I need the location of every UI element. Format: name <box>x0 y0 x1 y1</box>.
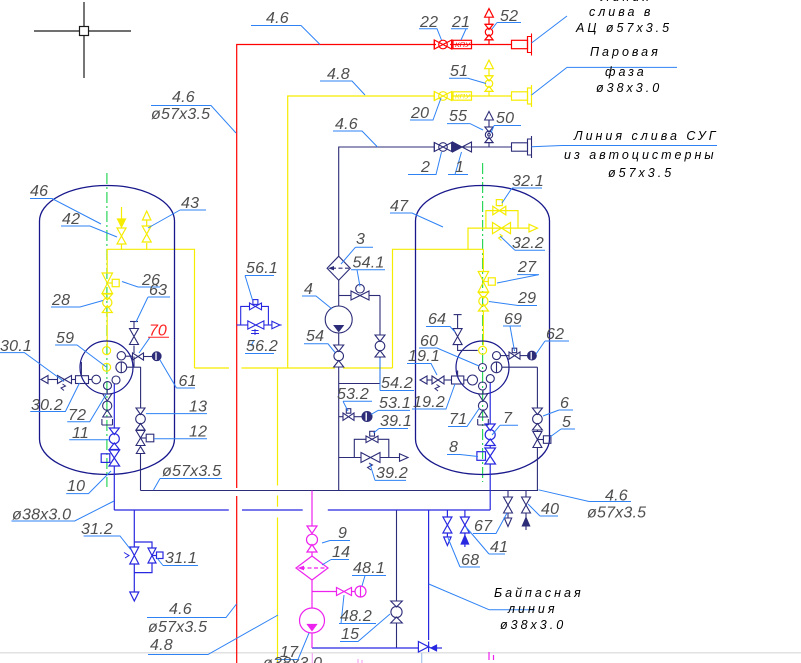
svg-text:4.8: 4.8 <box>327 66 350 83</box>
svg-text:8: 8 <box>449 439 458 456</box>
svg-text:72: 72 <box>68 407 86 424</box>
svg-text:4.6: 4.6 <box>605 488 628 505</box>
svg-text:48.2: 48.2 <box>340 608 372 625</box>
svg-text:53.1: 53.1 <box>379 395 411 412</box>
svg-text:19.1: 19.1 <box>408 348 440 365</box>
svg-text:53.2: 53.2 <box>337 386 369 403</box>
svg-text:Линия: Линия <box>600 0 652 4</box>
svg-text:Байпасная: Байпасная <box>494 586 584 600</box>
svg-text:1: 1 <box>455 159 464 176</box>
svg-text:67: 67 <box>474 518 493 535</box>
svg-text:фаза: фаза <box>605 65 647 79</box>
svg-text:4.6: 4.6 <box>266 10 289 27</box>
svg-text:51: 51 <box>450 63 468 80</box>
svg-text:31.2: 31.2 <box>81 521 113 538</box>
svg-text:4.6: 4.6 <box>335 116 358 133</box>
svg-text:39.2: 39.2 <box>376 465 408 482</box>
svg-text:ø38х3.0: ø38х3.0 <box>263 655 322 663</box>
svg-text:из автоцистерны: из автоцистерны <box>564 148 717 162</box>
svg-text:56.2: 56.2 <box>246 338 278 355</box>
svg-text:5: 5 <box>562 414 571 431</box>
svg-text:14: 14 <box>332 544 350 561</box>
svg-text:68: 68 <box>461 552 479 569</box>
svg-text:63: 63 <box>149 282 167 299</box>
svg-text:10: 10 <box>67 478 85 495</box>
svg-text:54: 54 <box>306 328 324 345</box>
svg-text:линия: линия <box>507 602 558 616</box>
svg-text:Паровая: Паровая <box>590 45 661 59</box>
svg-text:4.6: 4.6 <box>172 89 195 106</box>
svg-text:7: 7 <box>503 410 513 427</box>
svg-text:30.1: 30.1 <box>0 338 32 355</box>
svg-text:52: 52 <box>500 8 518 25</box>
svg-text:54.2: 54.2 <box>381 375 413 392</box>
svg-text:39.1: 39.1 <box>380 413 412 430</box>
svg-text:46: 46 <box>30 183 48 200</box>
svg-text:КПУ: КПУ <box>455 95 471 101</box>
svg-text:15: 15 <box>341 626 359 643</box>
svg-text:6: 6 <box>560 395 569 412</box>
svg-text:55: 55 <box>449 108 467 125</box>
svg-text:47: 47 <box>390 198 409 215</box>
svg-text:19.2: 19.2 <box>413 394 445 411</box>
svg-text:32.1: 32.1 <box>512 173 544 190</box>
svg-text:48.1: 48.1 <box>353 560 385 577</box>
svg-text:Линия слива СУГ: Линия слива СУГ <box>573 129 719 143</box>
svg-text:ø38х3.0: ø38х3.0 <box>500 618 566 632</box>
svg-text:ø57х3.5: ø57х3.5 <box>608 166 674 180</box>
svg-text:ø57х3.5: ø57х3.5 <box>151 106 210 123</box>
svg-text:29: 29 <box>517 290 536 307</box>
svg-text:62: 62 <box>546 326 564 343</box>
svg-text:41: 41 <box>490 539 508 556</box>
svg-text:21: 21 <box>451 14 470 31</box>
svg-text:43: 43 <box>181 195 199 212</box>
svg-text:11: 11 <box>72 425 89 442</box>
svg-text:4.8: 4.8 <box>150 637 173 654</box>
svg-text:ø38х3.0: ø38х3.0 <box>12 507 71 524</box>
svg-text:71: 71 <box>449 411 467 428</box>
svg-text:4.6: 4.6 <box>169 601 192 618</box>
svg-text:59: 59 <box>56 330 74 347</box>
svg-text:ø57х3.5: ø57х3.5 <box>148 619 207 636</box>
svg-text:КПУ: КПУ <box>455 43 471 49</box>
svg-text:32.2: 32.2 <box>512 235 544 252</box>
svg-text:4: 4 <box>304 281 313 298</box>
svg-text:27: 27 <box>517 259 537 276</box>
svg-text:56.1: 56.1 <box>246 260 278 277</box>
svg-text:40: 40 <box>541 501 559 518</box>
svg-text:АЦ ø57х3.5: АЦ ø57х3.5 <box>575 21 672 35</box>
svg-text:61: 61 <box>179 373 197 390</box>
svg-text:30.2: 30.2 <box>31 397 63 414</box>
svg-text:54.1: 54.1 <box>353 255 385 272</box>
svg-text:2: 2 <box>420 159 430 176</box>
svg-text:42: 42 <box>62 211 80 228</box>
svg-text:12: 12 <box>189 424 207 441</box>
svg-text:50: 50 <box>496 110 514 127</box>
svg-text:9: 9 <box>338 525 347 542</box>
svg-text:ø57х3.5: ø57х3.5 <box>587 505 646 522</box>
svg-text:31.1: 31.1 <box>165 550 197 567</box>
svg-text:22: 22 <box>419 14 438 31</box>
svg-text:13: 13 <box>189 399 207 416</box>
svg-text:ø38х3.0: ø38х3.0 <box>596 81 662 95</box>
svg-text:3: 3 <box>356 231 365 248</box>
svg-text:28: 28 <box>51 292 70 309</box>
svg-text:слива в: слива в <box>589 5 653 19</box>
svg-text:70: 70 <box>149 323 167 340</box>
svg-text:64: 64 <box>428 311 446 328</box>
svg-text:ø57х3.5: ø57х3.5 <box>162 463 221 480</box>
svg-text:20: 20 <box>410 105 429 122</box>
svg-text:69: 69 <box>504 311 522 328</box>
